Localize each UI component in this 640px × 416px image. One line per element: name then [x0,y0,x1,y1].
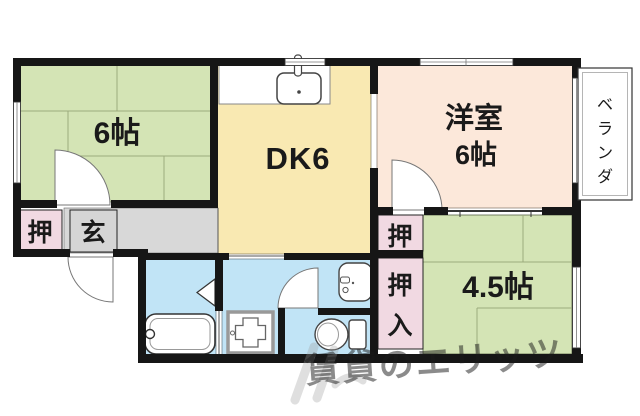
label-closet-upper: 押 [387,223,412,251]
door-arc-entrance [68,257,113,302]
label-dk: DK6 [265,141,330,176]
label-tatami-6: 6帖 [94,117,141,150]
label-western-size: 6帖 [455,140,497,170]
label-tatami-4-5: 4.5帖 [462,271,534,304]
veranda-label-char4: ダ [597,168,613,186]
window-tatami6-left [14,102,21,183]
label-closet-entry: 押 [27,219,52,247]
label-western-name: 洋室 [445,101,503,135]
bathtub-icon [145,314,215,354]
label-closet-lower-char2: 入 [387,312,412,340]
veranda: ベ ラ ン ダ [578,68,632,200]
label-closet-lower-char1: 押 [387,272,412,300]
window-western-top [420,59,513,66]
floor-plan-image: ベ ラ ン ダ 6帖 DK6 洋室 6帖 4.5帖 押 玄 押 押 入 賃貸のエ… [0,0,640,416]
washbasin-icon [339,263,372,301]
toilet-icon [315,319,366,350]
window-dk-top [285,59,325,66]
veranda-label-char1: ベ [597,97,613,114]
veranda-label-char2: ラ [597,121,613,138]
washing-machine-pan-icon [228,312,273,353]
veranda-label-char3: ン [597,145,613,162]
label-genkan: 玄 [80,218,105,247]
window-tatami45-right [573,267,581,348]
